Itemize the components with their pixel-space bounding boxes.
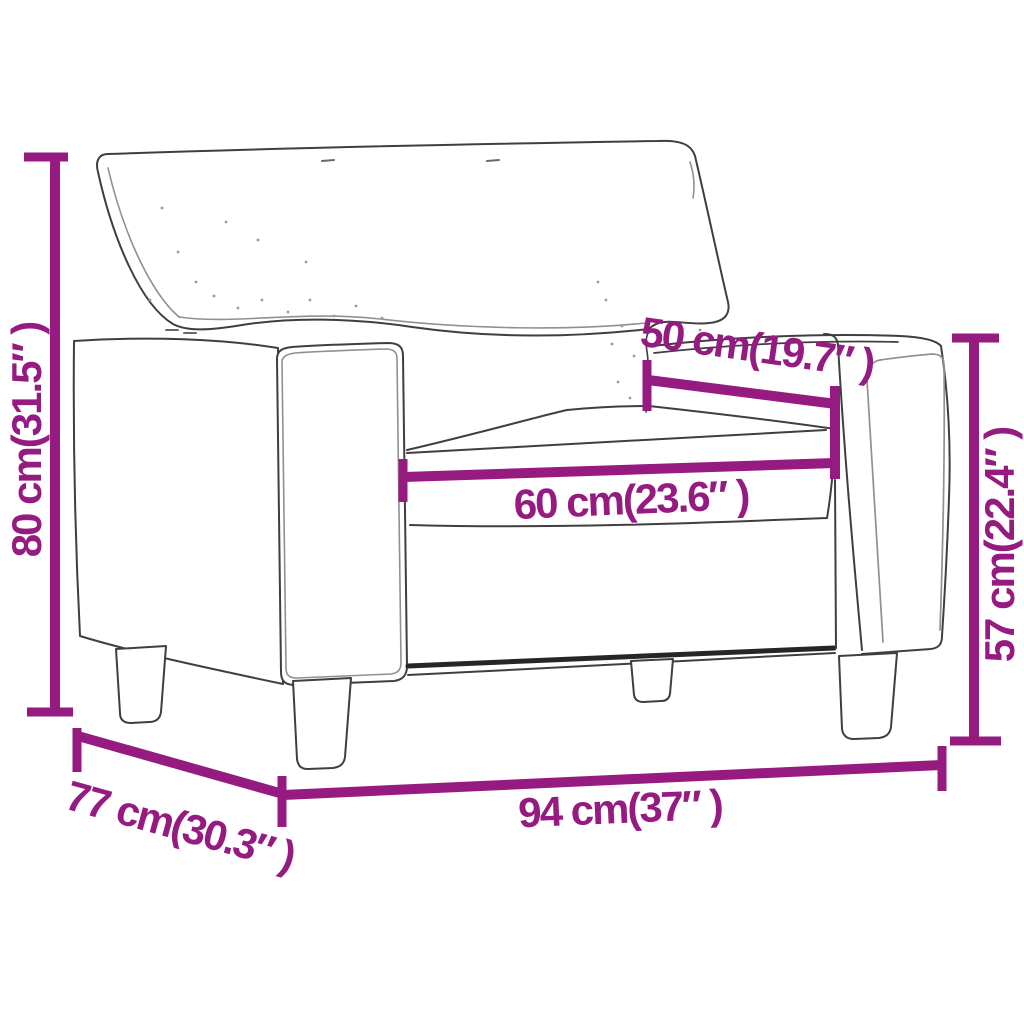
dimension-diagram: 80 cm(31.5″ ) 57 cm(22.4″ ) 50 cm(19.7″ … bbox=[0, 0, 1024, 1024]
dimension-label-arm-height: 57 cm(22.4″ ) bbox=[976, 375, 1024, 715]
dimension-label-overall-height: 80 cm(31.5″ ) bbox=[3, 270, 51, 610]
